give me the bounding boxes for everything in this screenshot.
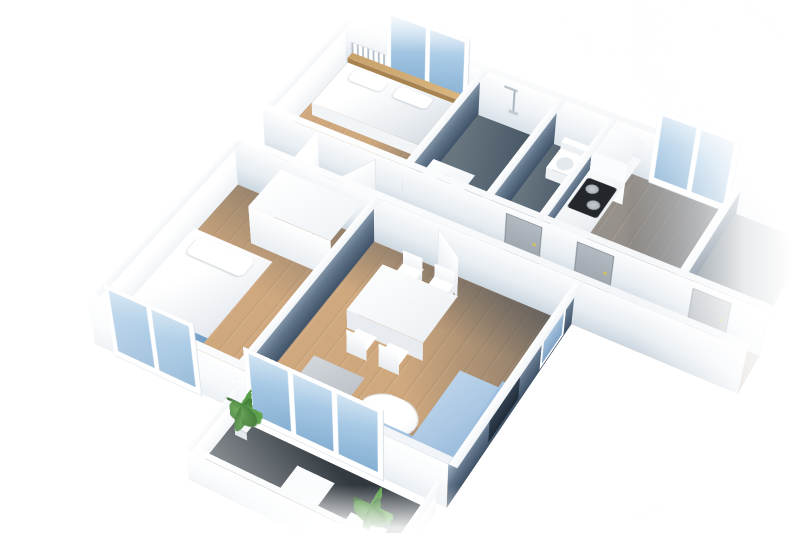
- burner-icon: [583, 183, 601, 196]
- shower-mixer-icon: [508, 109, 517, 116]
- door-kitchen-handle-icon: [604, 271, 607, 275]
- door-entry-handle-icon: [719, 318, 723, 322]
- apartment-plan: [39, 64, 800, 533]
- window-living-balcony-glass-3: [337, 394, 377, 472]
- window-living-balcony-glass-2: [292, 374, 333, 452]
- window-kitchen-glass-1: [654, 116, 696, 190]
- shower-head-icon: [504, 85, 517, 92]
- apartment-3d-render: [0, 0, 800, 533]
- burner-icon: [585, 199, 603, 212]
